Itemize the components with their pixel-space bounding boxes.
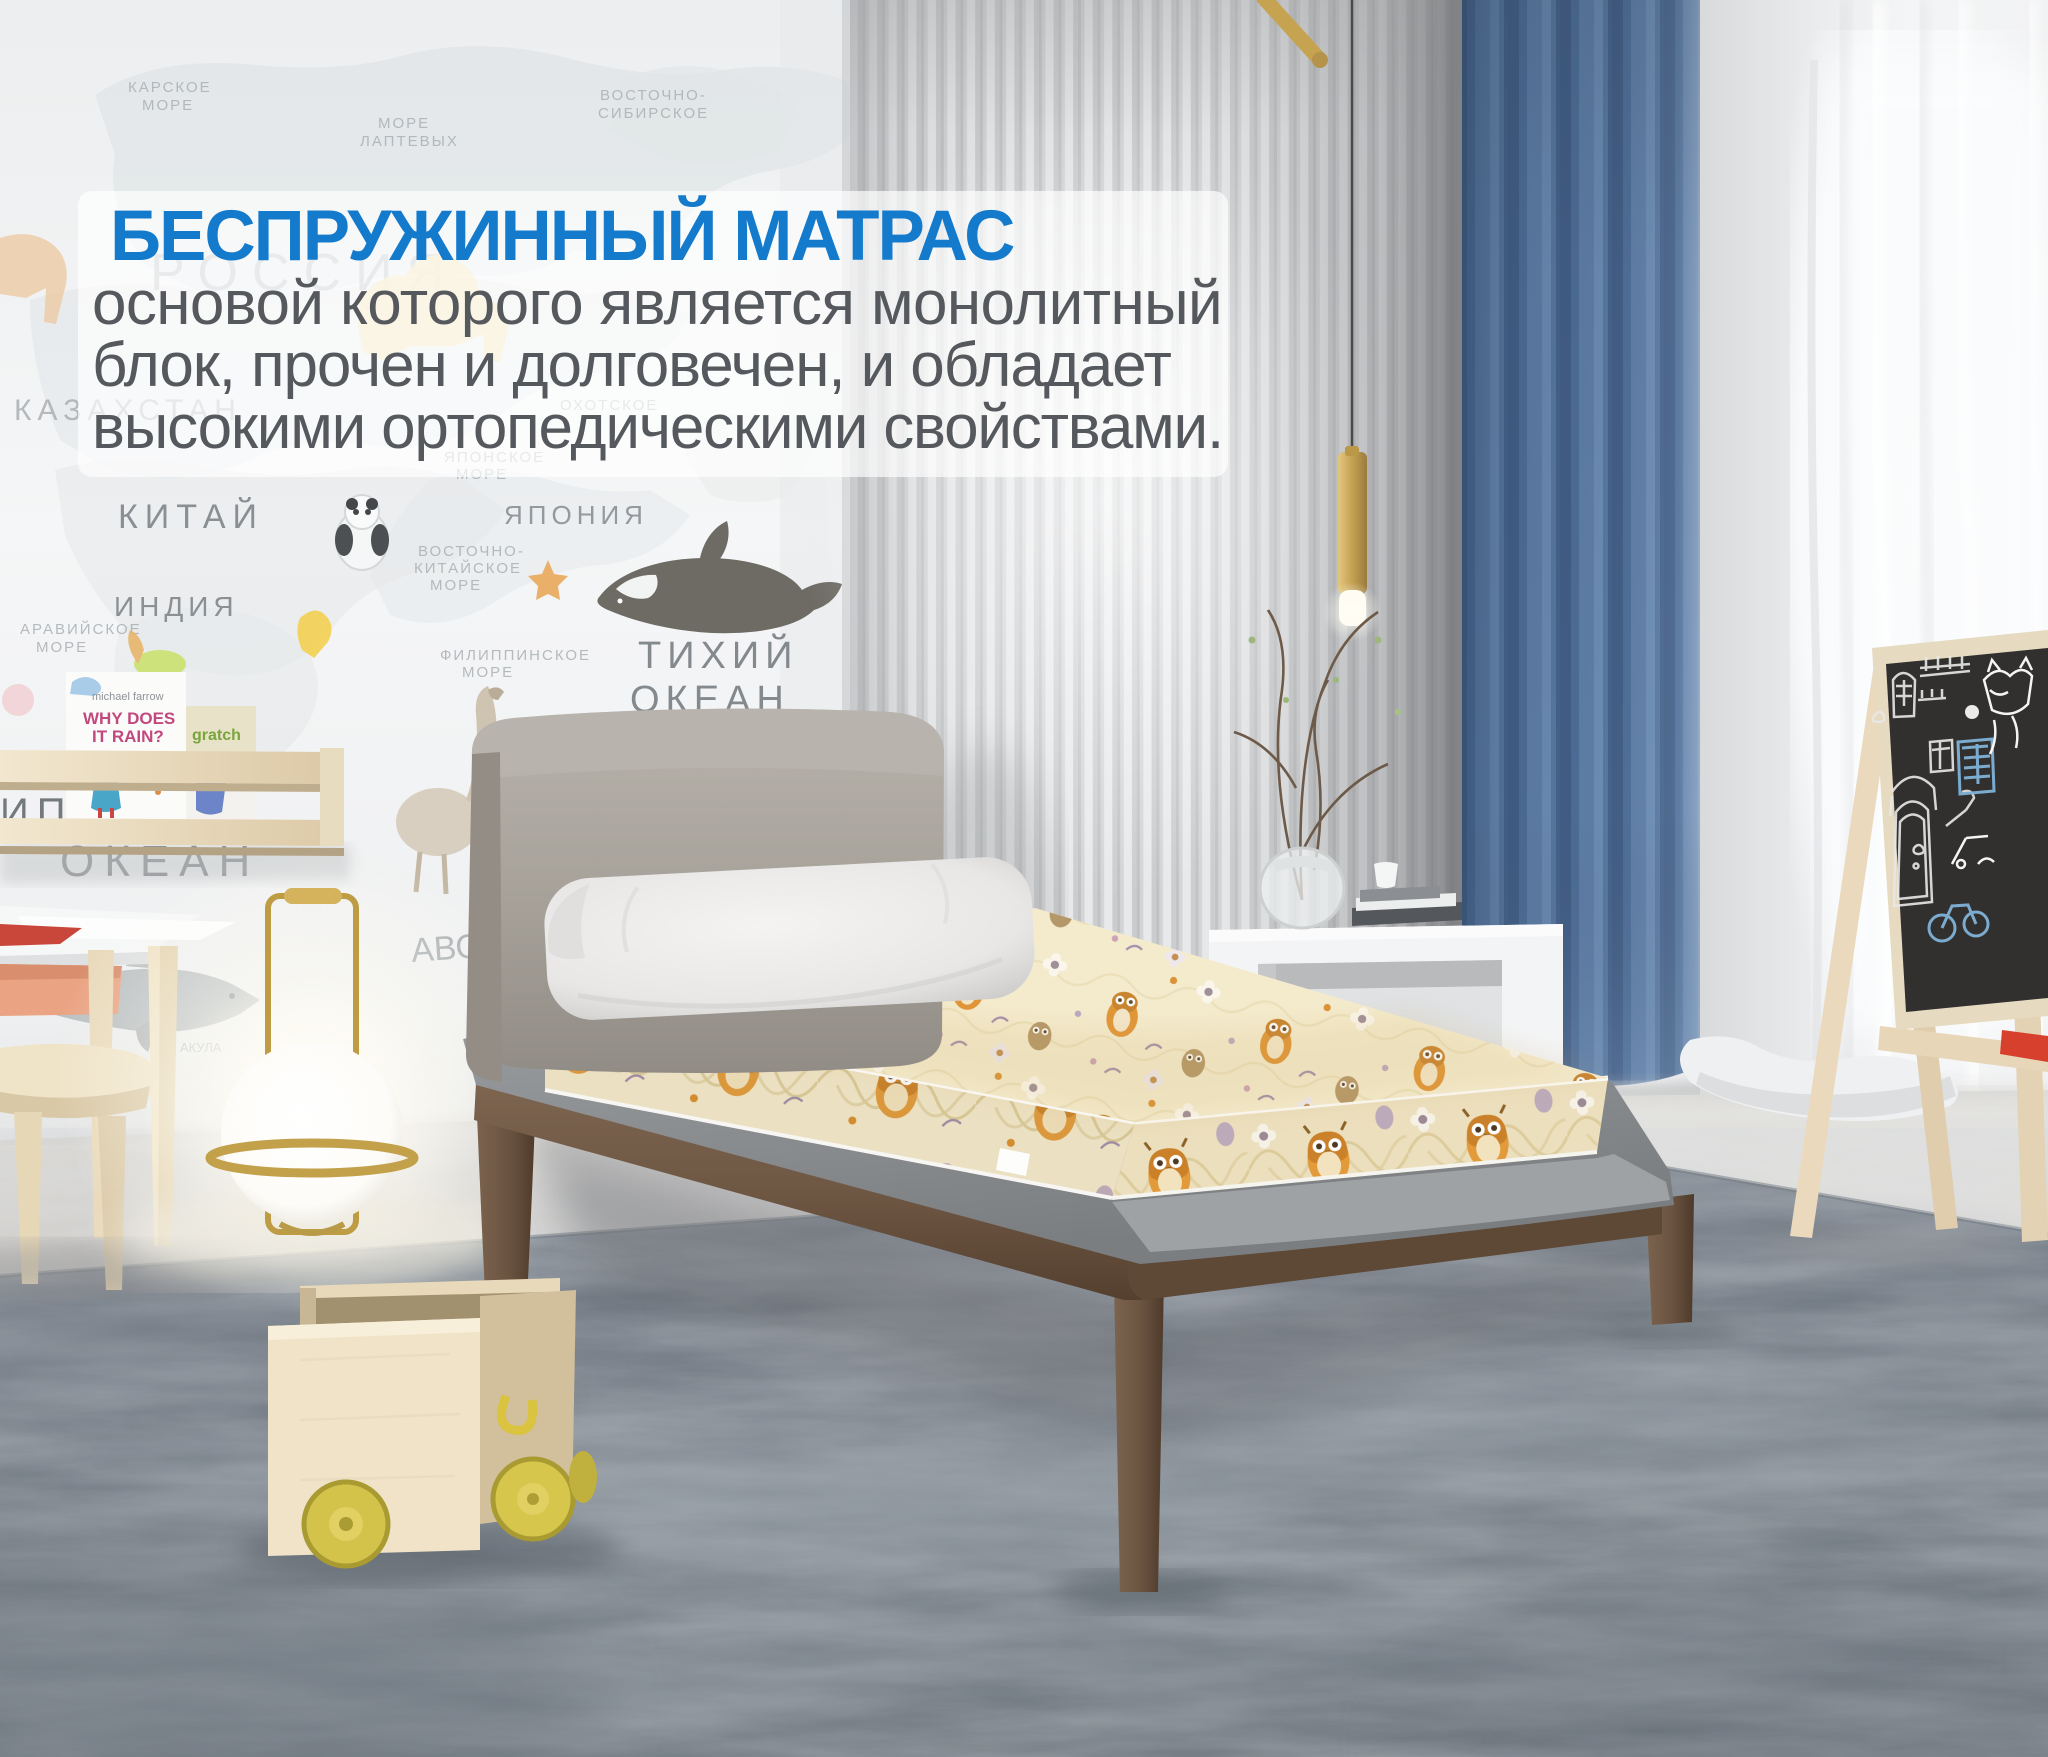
svg-text:основой которого является моно: основой которого является монолитный (92, 269, 1222, 338)
svg-text:МОРЕ: МОРЕ (36, 639, 88, 656)
svg-text:МОРЕ: МОРЕ (430, 577, 482, 594)
svg-text:ФИЛИППИНСКОЕ: ФИЛИППИНСКОЕ (440, 647, 591, 664)
svg-text:ЯПОНИЯ: ЯПОНИЯ (504, 500, 648, 530)
svg-text:michael farrow: michael farrow (92, 691, 164, 703)
svg-text:ИНДИЯ: ИНДИЯ (114, 591, 239, 622)
svg-text:КАРСКОЕ: КАРСКОЕ (128, 79, 212, 96)
svg-text:СИБИРСКОЕ: СИБИРСКОЕ (598, 105, 709, 122)
svg-text:МОРЕ: МОРЕ (142, 97, 194, 114)
svg-text:ВОСТОЧНО-: ВОСТОЧНО- (418, 543, 525, 560)
svg-text:МОРЕ: МОРЕ (462, 664, 514, 681)
svg-text:КИТАЙ: КИТАЙ (118, 498, 264, 536)
svg-text:ТИХИЙ: ТИХИЙ (638, 632, 799, 677)
svg-text:высокими ортопедическими свойс: высокими ортопедическими свойствами. (92, 393, 1223, 462)
svg-text:КИТАЙСКОЕ: КИТАЙСКОЕ (414, 559, 522, 577)
svg-text:блок, прочен и долговечен, и о: блок, прочен и долговечен, и обладает (92, 331, 1171, 400)
svg-text:ЛАПТЕВЫХ: ЛАПТЕВЫХ (360, 133, 459, 150)
svg-text:АРАВИЙСКОЕ: АРАВИЙСКОЕ (20, 620, 142, 638)
svg-text:МОРЕ: МОРЕ (378, 115, 430, 132)
svg-text:IT RAIN?: IT RAIN? (92, 727, 164, 746)
svg-text:gratch: gratch (192, 727, 241, 744)
svg-text:WHY DOES: WHY DOES (83, 709, 175, 728)
svg-text:БЕСПРУЖИННЫЙ МАТРАС: БЕСПРУЖИННЫЙ МАТРАС (110, 196, 1014, 276)
svg-text:ВОСТОЧНО-: ВОСТОЧНО- (600, 87, 707, 104)
